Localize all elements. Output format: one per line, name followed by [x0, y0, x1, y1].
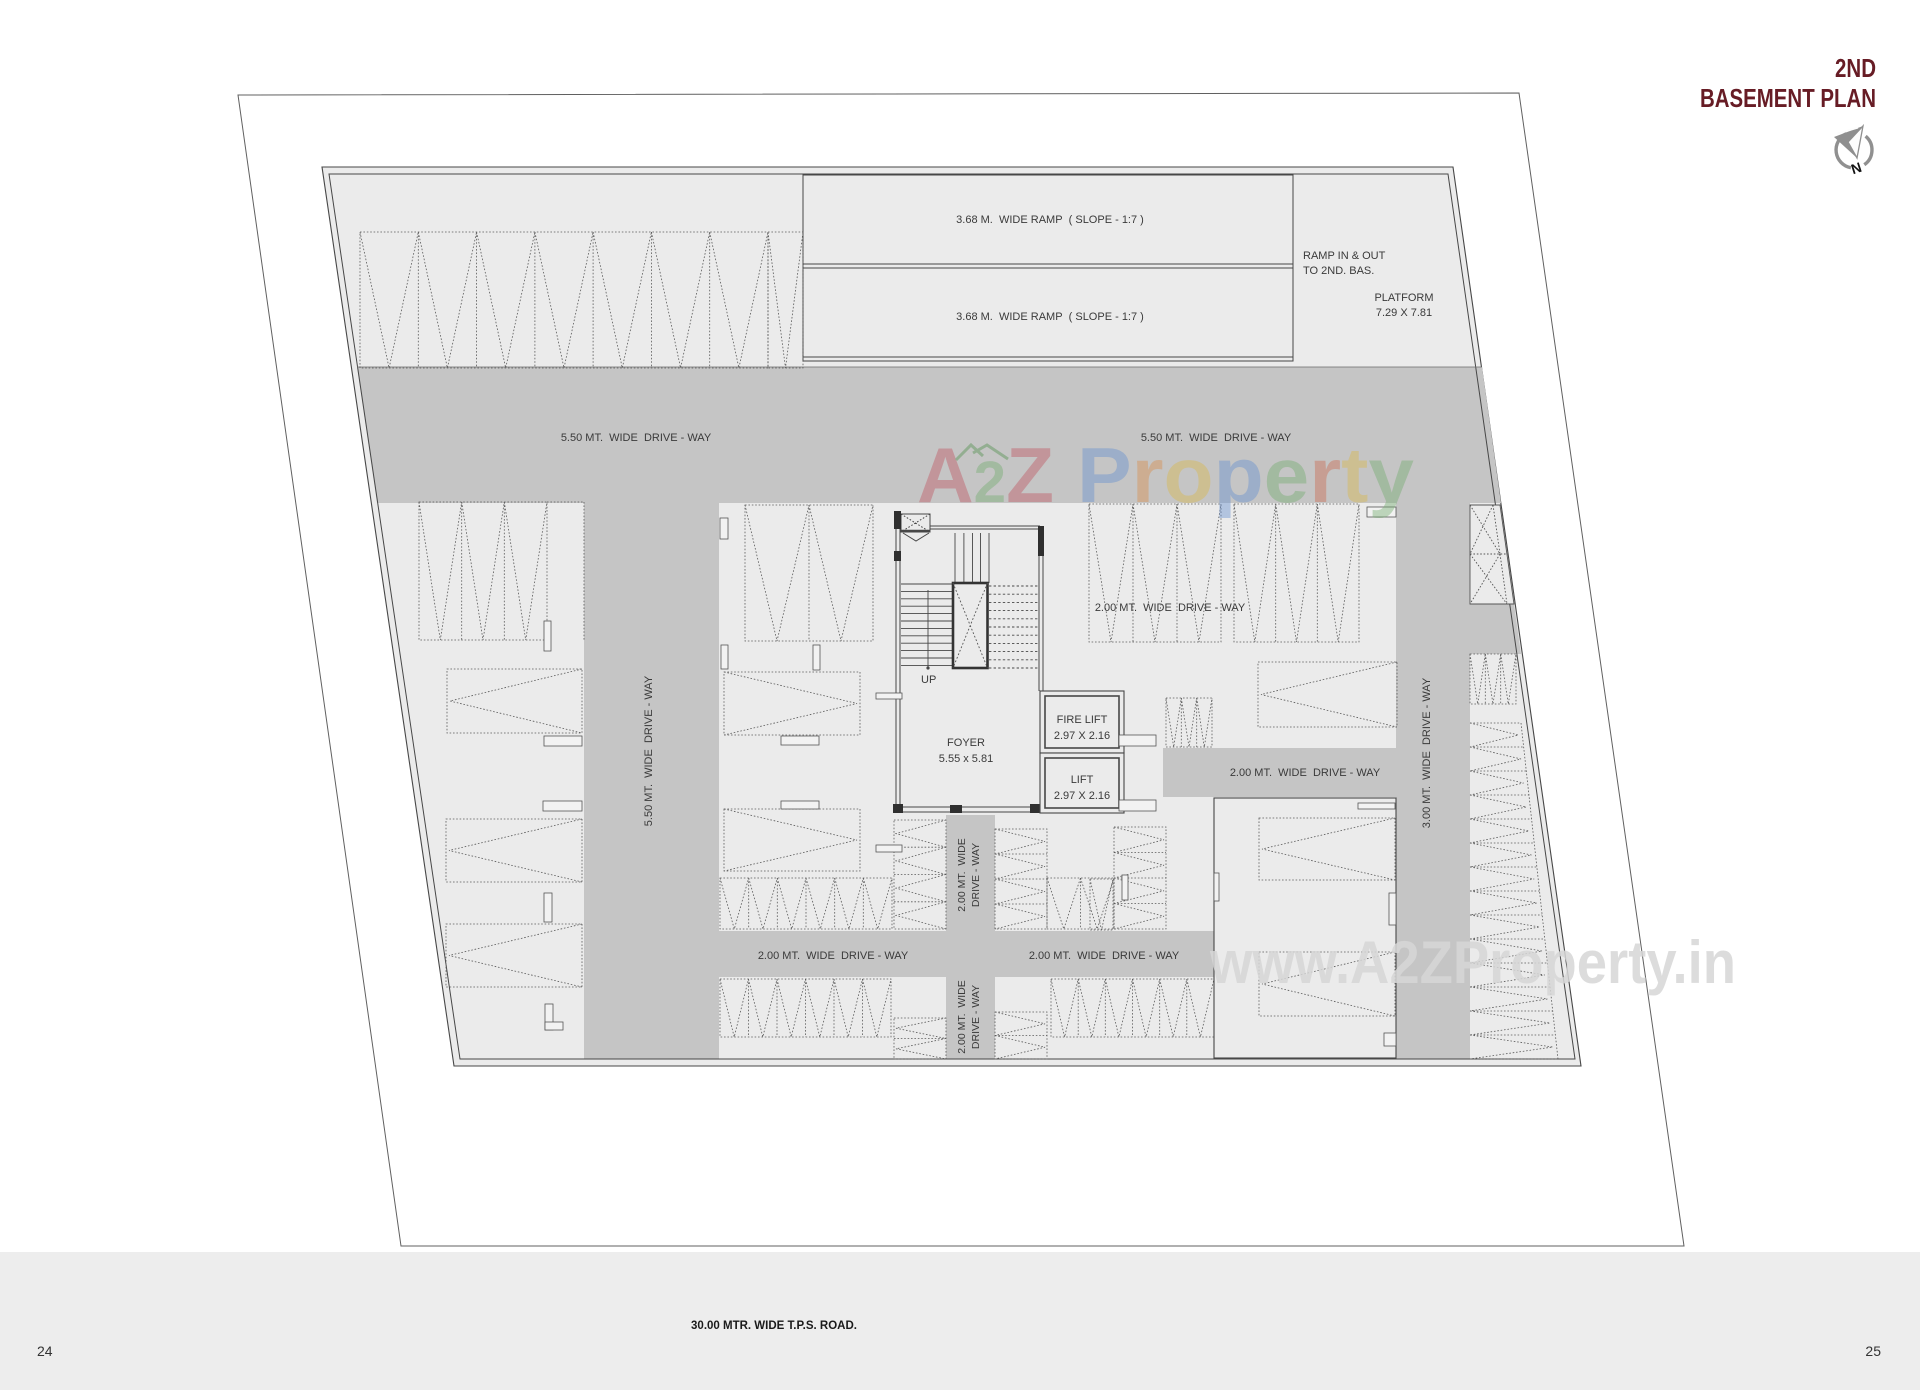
svg-text:3.68 M. WIDE RAMP ( SLOPE -: 3.68 M. WIDE RAMP ( SLOPE - 1:7 ) — [956, 311, 1144, 323]
svg-text:5.55 x 5.81: 5.55 x 5.81 — [939, 753, 993, 765]
svg-text:DRIVE - WAY: DRIVE - WAY — [970, 985, 982, 1049]
svg-text:Property: Property — [1077, 431, 1414, 519]
svg-text:25: 25 — [1865, 1343, 1881, 1359]
svg-text:2.00 MT. WIDE DRIVE - WAY: 2.00 MT. WIDE DRIVE - WAY — [758, 950, 909, 962]
svg-text:FOYER: FOYER — [947, 737, 985, 749]
svg-text:30.00 MTR. WIDE T.P.S. ROAD.: 30.00 MTR. WIDE T.P.S. ROAD. — [691, 1320, 857, 1332]
svg-text:5.50 MT. WIDE DRIVE - WAY: 5.50 MT. WIDE DRIVE - WAY — [643, 675, 655, 826]
svg-text:2.97 X 2.16: 2.97 X 2.16 — [1054, 790, 1110, 802]
svg-text:24: 24 — [37, 1343, 53, 1359]
svg-text:3.68 M. WIDE RAMP ( SLOPE -: 3.68 M. WIDE RAMP ( SLOPE - 1:7 ) — [956, 214, 1144, 226]
svg-text:FIRE LIFT: FIRE LIFT — [1057, 714, 1108, 726]
svg-text:RAMP IN & OUT: RAMP IN & OUT — [1303, 250, 1386, 262]
svg-text:PLATFORM: PLATFORM — [1374, 292, 1433, 304]
svg-text:2.97 X 2.16: 2.97 X 2.16 — [1054, 730, 1110, 742]
svg-text:2.00 MT. WIDE DRIVE - WAY: 2.00 MT. WIDE DRIVE - WAY — [1029, 950, 1180, 962]
svg-text:BASEMENT PLAN: BASEMENT PLAN — [1700, 83, 1876, 113]
svg-text:5.50 MT. WIDE DRIVE - WAY: 5.50 MT. WIDE DRIVE - WAY — [561, 432, 712, 444]
svg-text:UP: UP — [921, 674, 936, 686]
svg-text:www.A2ZProperty.in: www.A2ZProperty.in — [1209, 929, 1736, 996]
svg-text:2.00 MT. WIDE: 2.00 MT. WIDE — [956, 980, 968, 1054]
svg-text:2.00 MT. WIDE DRIVE - WAY: 2.00 MT. WIDE DRIVE - WAY — [1095, 602, 1246, 614]
svg-text:DRIVE - WAY: DRIVE - WAY — [970, 843, 982, 907]
svg-text:2.00 MT. WIDE: 2.00 MT. WIDE — [956, 838, 968, 912]
svg-text:7.29 X 7.81: 7.29 X 7.81 — [1376, 307, 1432, 319]
svg-text:3.00 MT. WIDE DRIVE - WAY: 3.00 MT. WIDE DRIVE - WAY — [1421, 677, 1433, 828]
svg-text:LIFT: LIFT — [1071, 774, 1094, 786]
svg-text:2.00 MT. WIDE DRIVE - WAY: 2.00 MT. WIDE DRIVE - WAY — [1230, 767, 1381, 779]
svg-text:TO 2ND. BAS.: TO 2ND. BAS. — [1303, 265, 1374, 277]
svg-text:2ND: 2ND — [1835, 53, 1876, 83]
